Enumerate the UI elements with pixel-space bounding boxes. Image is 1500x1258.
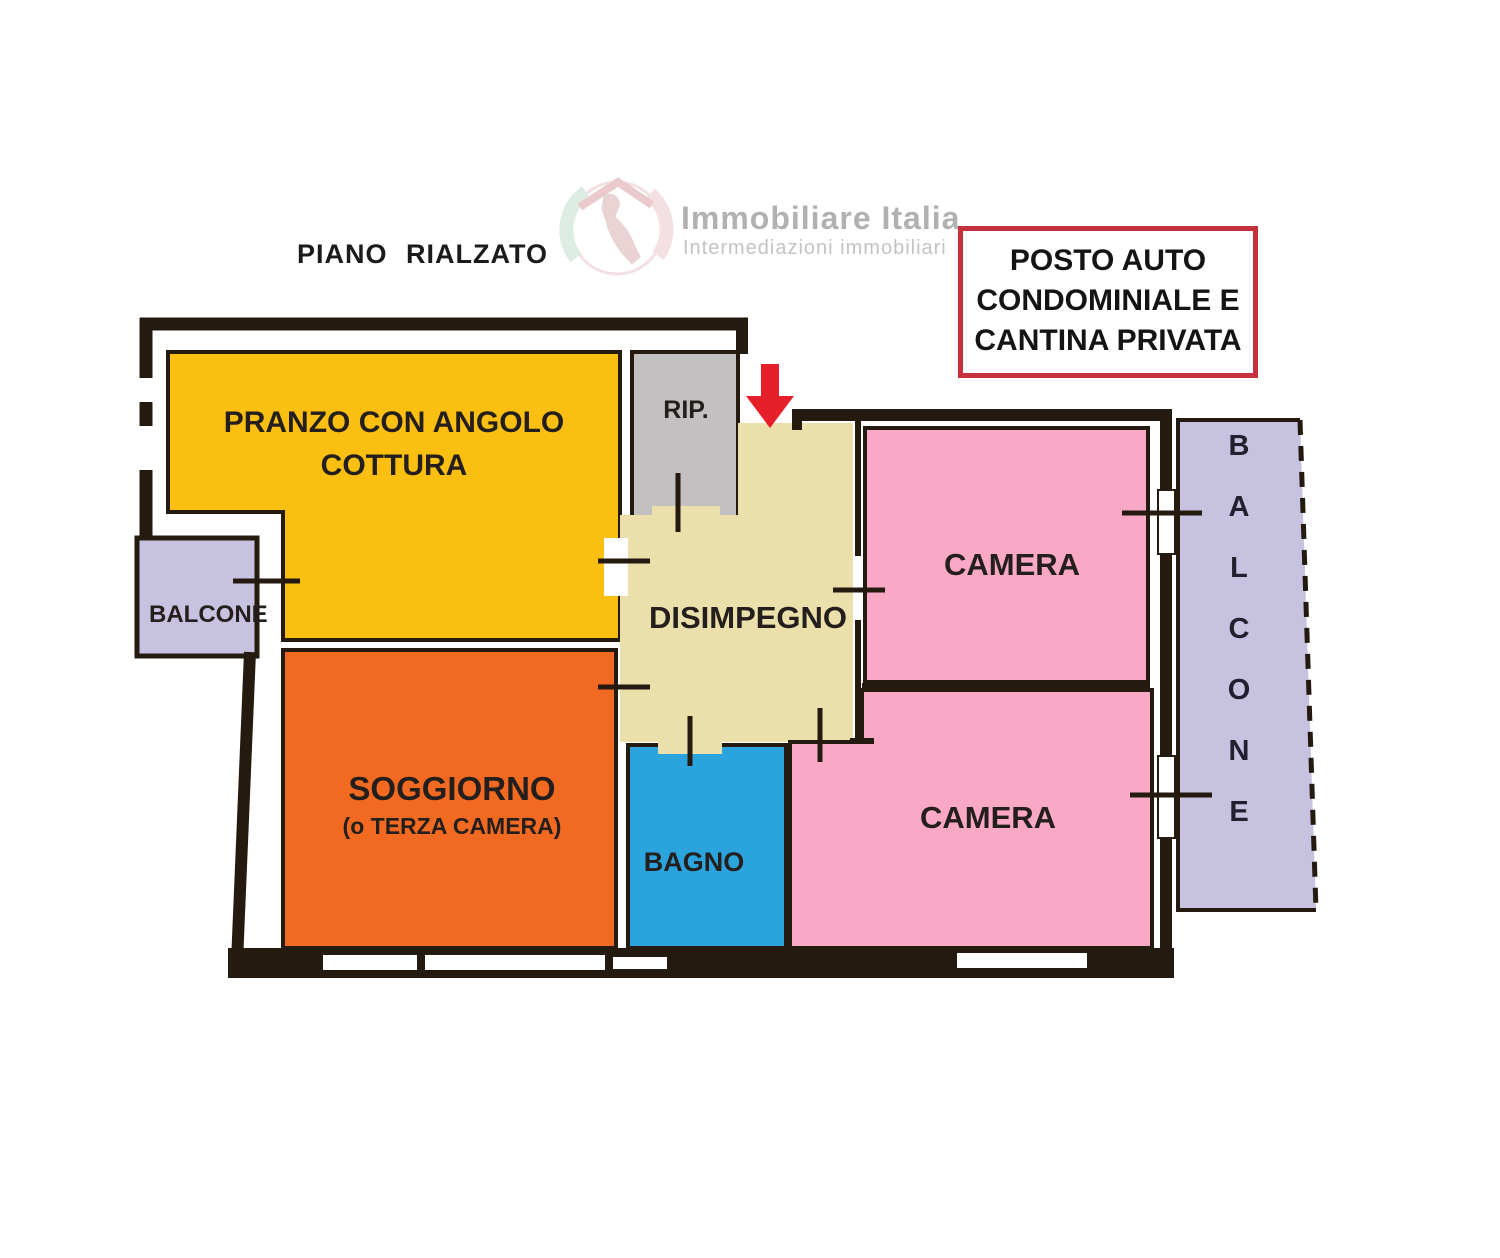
label-soggiorno: SOGGIORNO <box>348 770 555 807</box>
label-soggiorno-sub: (o TERZA CAMERA) <box>343 813 562 839</box>
label-camera-bottom: CAMERA <box>920 800 1056 835</box>
label-disimpegno: DISIMPEGNO <box>649 600 847 635</box>
label-bagno: BAGNO <box>644 847 745 877</box>
room-rip <box>632 352 738 517</box>
rip-door-gap <box>652 506 720 532</box>
label-camera-top: CAMERA <box>944 547 1080 582</box>
label-pranzo-line2: COTTURA <box>321 449 468 482</box>
room-balcone-left <box>137 538 257 656</box>
entrance-arrow-icon <box>746 364 794 428</box>
label-pranzo-line1: PRANZO CON ANGOLO <box>224 406 565 439</box>
floor-plan: PRANZO CON ANGOLO COTTURA RIP. DISIMPEGN… <box>0 0 1500 1258</box>
agency-emblem-icon <box>566 182 666 274</box>
label-rip: RIP. <box>663 396 708 424</box>
label-balcone-left: BALCONE <box>149 601 268 628</box>
label-balcone-right: BALCONE <box>1222 430 1255 930</box>
pranzo-door-gap <box>604 538 628 596</box>
